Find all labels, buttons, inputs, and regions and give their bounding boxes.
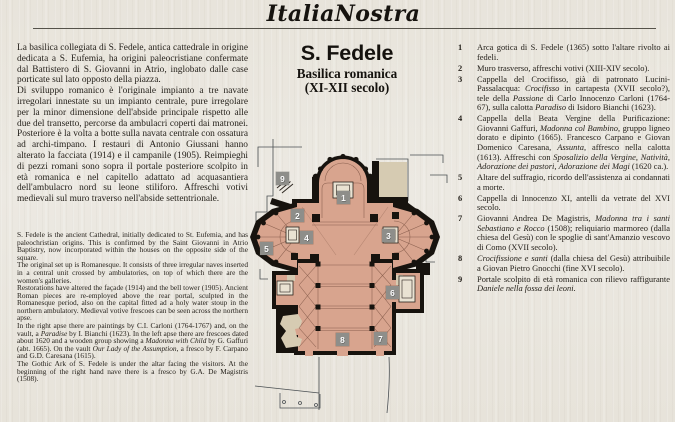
left-text-column: La basilica collegiata di S. Fedele, ant… bbox=[17, 43, 248, 383]
plan-marker-6: 6 bbox=[386, 286, 399, 299]
legend-item: 6 Cappella di Innocenzo XI, antelli da v… bbox=[458, 194, 670, 213]
plan-marker-8: 8 bbox=[336, 333, 349, 346]
floor-plan: 1 2 3 4 5 6 7 8 9 bbox=[250, 125, 460, 422]
legend-item-number: 4 bbox=[458, 114, 477, 171]
english-paragraph: The Gothic Ark of S. Fedele is under the… bbox=[17, 360, 248, 383]
legend-item: 5 Altare del suffragio, ricordo dell'ass… bbox=[458, 173, 670, 192]
plan-marker-9: 9 bbox=[276, 172, 289, 185]
legend-item-number: 2 bbox=[458, 64, 477, 74]
legend-item-number: 9 bbox=[458, 275, 477, 294]
plan-marker-3: 3 bbox=[382, 229, 395, 242]
page-title: S. Fedele bbox=[258, 42, 436, 64]
legend-item-text: Cappella della Beata Vergine della Purif… bbox=[477, 114, 670, 171]
english-paragraph: S. Fedele is the ancient Cathedral, init… bbox=[17, 231, 248, 261]
scanned-guidebook-page: { "page": { "colors": { "paper": "#e9e6d… bbox=[0, 0, 675, 422]
masthead-rule bbox=[33, 28, 656, 29]
english-paragraph: In the right apse there are paintings by… bbox=[17, 322, 248, 360]
legend-item-text: Giovanni Andrea De Magistris, Madonna tr… bbox=[477, 214, 670, 252]
legend-item: 3 Cappella del Crocifisso, già di patron… bbox=[458, 75, 670, 113]
legend-item-number: 3 bbox=[458, 75, 477, 113]
legend-item: 4 Cappella della Beata Vergine della Pur… bbox=[458, 114, 670, 171]
legend-item-text: Portale scolpito di età romanica con ril… bbox=[477, 275, 670, 294]
plan-marker-5: 5 bbox=[260, 242, 273, 255]
italian-paragraph: Di sviluppo romanico è l'originale impia… bbox=[17, 86, 248, 205]
legend-item: 2 Muro trasverso, affreschi votivi (XIII… bbox=[458, 64, 670, 74]
legend-item-text: Altare del suffragio, ricordo dell'assis… bbox=[477, 173, 670, 192]
italian-paragraph: La basilica collegiata di S. Fedele, ant… bbox=[17, 43, 248, 86]
legend-item: 7 Giovanni Andrea De Magistris, Madonna … bbox=[458, 214, 670, 252]
legend-item-number: 7 bbox=[458, 214, 477, 252]
article-title-block: S. Fedele Basilica romanica (XI-XII seco… bbox=[258, 42, 436, 94]
legend-item-number: 1 bbox=[458, 43, 477, 62]
english-paragraph: The original set up is Romanesque. It co… bbox=[17, 261, 248, 284]
italian-description: La basilica collegiata di S. Fedele, ant… bbox=[17, 43, 248, 205]
legend-item-text: Muro trasverso, affreschi votivi (XIII-X… bbox=[477, 64, 670, 74]
legend-item-number: 5 bbox=[458, 173, 477, 192]
legend-item: 8 Crocifissione e santi (dalla chiesa de… bbox=[458, 254, 670, 273]
subtitle-line-2: (XI-XII secolo) bbox=[258, 81, 436, 95]
legend-item-number: 6 bbox=[458, 194, 477, 213]
plan-marker-4: 4 bbox=[300, 231, 313, 244]
legend-item-number: 8 bbox=[458, 254, 477, 273]
legend-item-text: Crocifissione e santi (dalla chiesa del … bbox=[477, 254, 670, 273]
legend-item-text: Cappella di Innocenzo XI, antelli da vet… bbox=[477, 194, 670, 213]
legend-item-text: Cappella del Crocifisso, già di patronat… bbox=[477, 75, 670, 113]
masthead-title: ItaliaNostra bbox=[0, 1, 675, 27]
legend-list: 1 Arca gotica di S. Fedele (1365) sotto … bbox=[458, 43, 670, 295]
page-subtitle: Basilica romanica (XI-XII secolo) bbox=[258, 67, 436, 94]
legend-item-text: Arca gotica di S. Fedele (1365) sotto l'… bbox=[477, 43, 670, 62]
english-description: S. Fedele is the ancient Cathedral, init… bbox=[17, 231, 248, 383]
plan-marker-1: 1 bbox=[337, 191, 350, 204]
english-paragraph: Restorations have altered the façade (19… bbox=[17, 284, 248, 322]
legend-item: 9 Portale scolpito di età romanica con r… bbox=[458, 275, 670, 294]
legend-item: 1 Arca gotica di S. Fedele (1365) sotto … bbox=[458, 43, 670, 62]
subtitle-line-1: Basilica romanica bbox=[258, 67, 436, 81]
floor-plan-drawing bbox=[250, 125, 460, 422]
plan-marker-2: 2 bbox=[291, 209, 304, 222]
plan-marker-7: 7 bbox=[374, 332, 387, 345]
